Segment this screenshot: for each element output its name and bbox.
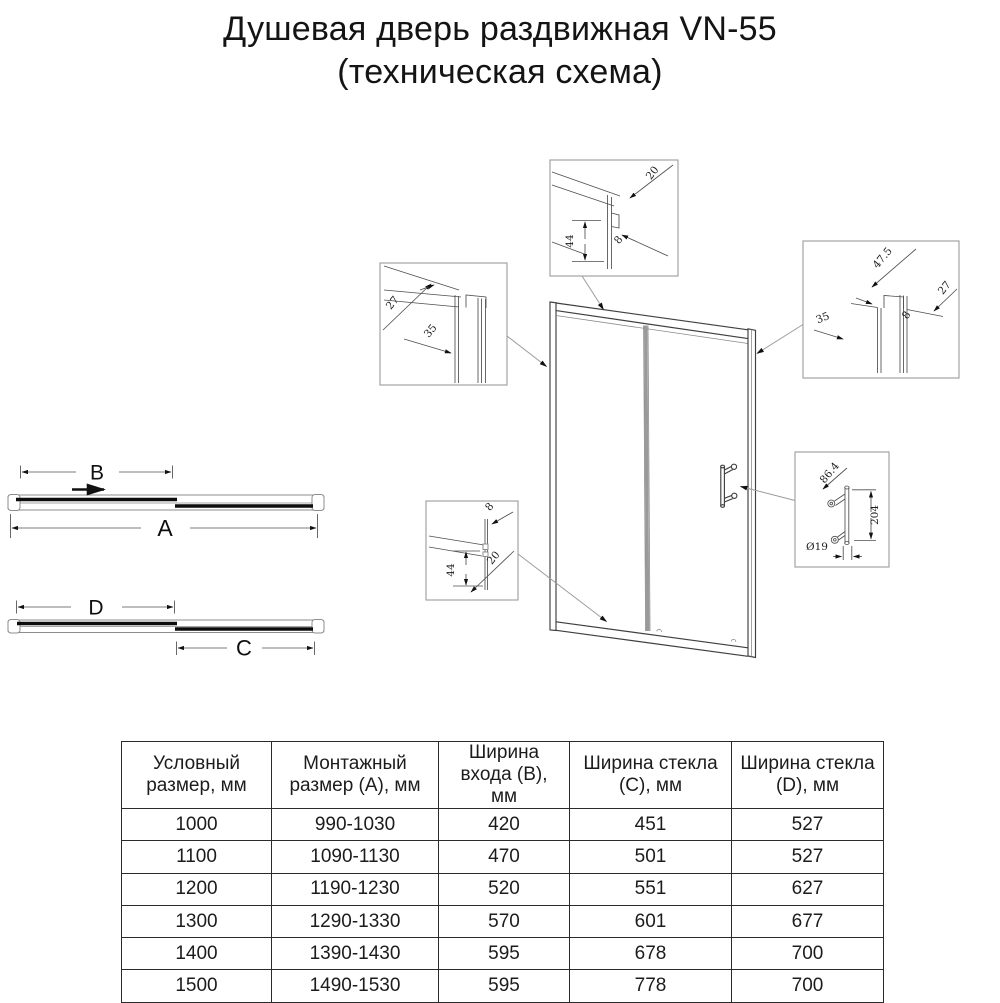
table-row: 14001390-1430595678700	[122, 938, 884, 970]
table-cell: 1300	[122, 905, 272, 937]
callout-left-profile: 27 35	[380, 263, 507, 385]
plan-top-profile-bar	[8, 495, 324, 510]
table-cell: 595	[439, 938, 570, 970]
table-cell: 1000	[122, 809, 272, 841]
table-cell: 570	[439, 905, 570, 937]
table-cell: 451	[570, 809, 732, 841]
column-header: Монтажный размер (А), мм	[272, 742, 439, 809]
dim-label: 204	[869, 505, 881, 525]
table-cell: 527	[732, 841, 884, 873]
table-cell: 1490-1530	[272, 970, 439, 1002]
wall-profile-left	[8, 495, 20, 511]
table-cell: 1090-1130	[272, 841, 439, 873]
plan-view-bottom: D C	[8, 597, 324, 661]
table-cell: 470	[439, 841, 570, 873]
table-cell: 778	[570, 970, 732, 1002]
dimension-a: A	[11, 514, 318, 541]
table-row: 11001090-1130470501527	[122, 841, 884, 873]
dim-label-d: D	[88, 597, 103, 620]
table-cell: 527	[732, 809, 884, 841]
door-handle	[721, 464, 737, 507]
table-cell: 700	[732, 970, 884, 1002]
dimension-c: C	[177, 636, 315, 661]
dimension-b: B	[21, 462, 173, 485]
title-line-2: (техническая схема)	[0, 51, 1000, 94]
dimension-d: D	[17, 597, 175, 620]
column-header: Условный размер, мм	[122, 742, 272, 809]
wall-profile-right-2	[312, 620, 324, 634]
table-row: 1000990-1030420451527	[122, 809, 884, 841]
title-line-1: Душевая дверь раздвижная VN-55	[0, 8, 1000, 51]
wall-profile-right	[312, 495, 324, 511]
table-cell: 1100	[122, 841, 272, 873]
table-cell: 700	[732, 938, 884, 970]
door-bottom-guide-2	[731, 639, 736, 642]
table-cell: 1200	[122, 873, 272, 905]
table-row: 12001190-1230520551627	[122, 873, 884, 905]
table-cell: 1400	[122, 938, 272, 970]
column-header: Ширина стекла (С), мм	[570, 742, 732, 809]
callout-bottom-rail: 8 44 20	[426, 501, 518, 600]
table-cell: 1500	[122, 970, 272, 1002]
technical-drawing: B A D C	[0, 128, 1000, 746]
leader-left-detail	[507, 336, 547, 367]
table-row: 13001290-1330570601677	[122, 905, 884, 937]
plan-view-top: B A	[8, 462, 324, 542]
table-cell: 420	[439, 809, 570, 841]
table-cell: 595	[439, 970, 570, 1002]
size-table: Условный размер, ммМонтажный размер (А),…	[121, 741, 884, 1003]
leader-right-detail	[757, 325, 803, 354]
size-table-section: Условный размер, ммМонтажный размер (А),…	[121, 741, 884, 1003]
callout-top-rail: 20 44 8	[550, 160, 678, 276]
table-cell: 990-1030	[272, 809, 439, 841]
column-header: Ширина стекла (D), мм	[732, 742, 884, 809]
table-row: 15001490-1530595778700	[122, 970, 884, 1002]
door-bottom-rail	[556, 622, 748, 648]
callout-handle: 86.4 204 Ø19	[795, 452, 889, 567]
callout-box	[380, 263, 507, 385]
dim-label: Ø19	[806, 541, 828, 553]
page-title: Душевая дверь раздвижная VN-55 (техничес…	[0, 8, 1000, 94]
callout-box	[550, 160, 678, 276]
dim-label-b: B	[90, 462, 104, 485]
dim-label-a: A	[157, 515, 173, 541]
table-cell: 627	[732, 873, 884, 905]
table-cell: 601	[570, 905, 732, 937]
table-cell: 551	[570, 873, 732, 905]
dim-label: 44	[564, 234, 576, 248]
leader-bottom-detail	[518, 554, 607, 622]
table-cell: 678	[570, 938, 732, 970]
table-cell: 501	[570, 841, 732, 873]
door-glass-divider	[646, 326, 648, 632]
column-header: Ширина входа (В), мм	[439, 742, 570, 809]
callout-box	[426, 501, 518, 600]
wall-profile-left-2	[8, 620, 20, 634]
table-cell: 1290-1330	[272, 905, 439, 937]
door-bottom-guide-1	[657, 629, 662, 632]
door-elevation	[550, 302, 756, 658]
table-cell: 1390-1430	[272, 938, 439, 970]
dim-label: 44	[445, 563, 457, 577]
table-header-row: Условный размер, ммМонтажный размер (А),…	[122, 742, 884, 809]
leader-top-detail	[582, 276, 604, 310]
dim-label-c: C	[236, 636, 252, 661]
callout-right-profile: 47.5 27 35 8	[803, 241, 959, 378]
table-cell: 520	[439, 873, 570, 905]
door-top-rail	[556, 303, 748, 330]
table-cell: 1190-1230	[272, 873, 439, 905]
page: { "title": { "line1": "Душевая дверь раз…	[0, 0, 1000, 1000]
table-cell: 677	[732, 905, 884, 937]
